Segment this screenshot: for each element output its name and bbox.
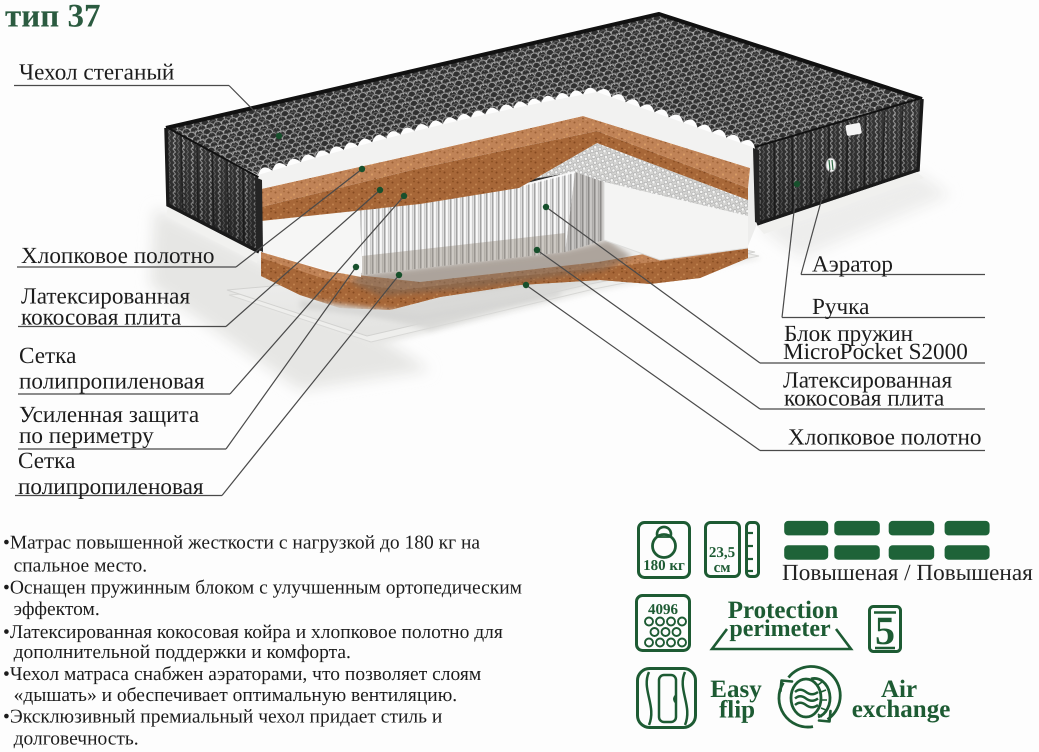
- svg-text:тип 37: тип 37: [5, 0, 101, 35]
- svg-text:Повышеная / Повышеная: Повышеная / Повышеная: [782, 560, 1033, 586]
- svg-text:•Оснащен пружинным блоком с ул: •Оснащен пружинным блоком с улучшенным о…: [3, 577, 522, 598]
- svg-text:спальное место.: спальное место.: [14, 556, 148, 577]
- svg-text:23,5: 23,5: [709, 545, 735, 561]
- svg-text:exchange: exchange: [852, 696, 951, 723]
- svg-text:полипропиленовая: полипропиленовая: [19, 369, 205, 395]
- svg-text:см: см: [714, 560, 731, 576]
- svg-text:4096: 4096: [648, 602, 679, 618]
- svg-text:Ручка: Ручка: [812, 294, 869, 320]
- svg-text:долговечность.: долговечность.: [14, 728, 139, 749]
- svg-text:•Латексированная кокосовая кой: •Латексированная кокосовая койра и хлопк…: [3, 622, 503, 643]
- svg-text:дополнительной поддержки и ком: дополнительной поддержки и комфорта.: [14, 642, 351, 663]
- svg-text:кокосовая плита: кокосовая плита: [21, 305, 181, 331]
- svg-text:Сетка: Сетка: [19, 343, 76, 369]
- svg-text:по периметру: по периметру: [19, 423, 154, 449]
- svg-text:Сетка: Сетка: [18, 448, 75, 474]
- svg-text:эффектом.: эффектом.: [14, 599, 100, 620]
- svg-text:•Матрас повышенной жесткости с: •Матрас повышенной жесткости с нагрузкой…: [3, 532, 480, 553]
- svg-text:perimeter: perimeter: [729, 616, 831, 642]
- svg-text:5: 5: [875, 608, 895, 653]
- svg-text:Чехол стеганый: Чехол стеганый: [19, 60, 174, 86]
- svg-text:flip: flip: [719, 697, 755, 724]
- svg-text:«дышать» и обеспечивает оптима: «дышать» и обеспечивает оптимальную вент…: [14, 685, 458, 706]
- svg-text:полипропиленовая: полипропиленовая: [18, 474, 204, 500]
- svg-text:Хлопковое полотно: Хлопковое полотно: [21, 243, 214, 269]
- svg-text:•Чехол матраса снабжен аэратор: •Чехол матраса снабжен аэраторами, что п…: [3, 664, 481, 685]
- svg-text:180 кг: 180 кг: [643, 558, 685, 574]
- svg-text:•Эксклюзивный премиальный чехо: •Эксклюзивный премиальный чехол придает …: [3, 707, 442, 728]
- svg-text:кокосовая плита: кокосовая плита: [784, 386, 944, 412]
- svg-text:Хлопковое полотно: Хлопковое полотно: [788, 425, 981, 451]
- svg-text:MicroPocket S2000: MicroPocket S2000: [783, 339, 968, 365]
- svg-text:Аэратор: Аэратор: [812, 252, 893, 278]
